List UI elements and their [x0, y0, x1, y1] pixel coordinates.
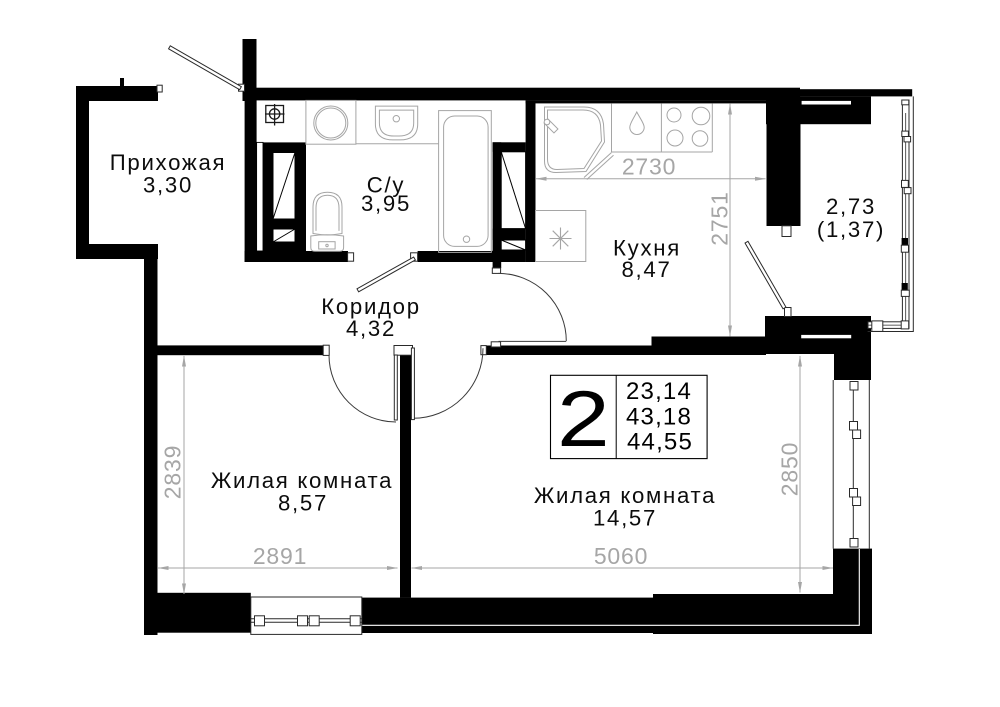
svg-text:14,57: 14,57	[593, 506, 657, 531]
svg-text:2,73: 2,73	[826, 194, 876, 219]
svg-text:44,55: 44,55	[627, 429, 693, 456]
svg-text:23,14: 23,14	[626, 378, 692, 405]
svg-text:8,47: 8,47	[622, 257, 672, 282]
svg-text:8,57: 8,57	[278, 491, 328, 516]
svg-text:Прихожая: Прихожая	[110, 150, 226, 175]
svg-text:3,30: 3,30	[143, 173, 193, 198]
svg-text:5060: 5060	[594, 543, 648, 569]
svg-text:2: 2	[557, 375, 610, 463]
svg-text:2891: 2891	[253, 543, 307, 569]
svg-text:2730: 2730	[622, 154, 676, 180]
svg-text:Жилая комната: Жилая комната	[211, 468, 393, 493]
svg-text:43,18: 43,18	[626, 404, 692, 431]
svg-text:3,95: 3,95	[361, 191, 411, 216]
svg-text:2751: 2751	[707, 191, 733, 245]
svg-text:(1,37): (1,37)	[817, 217, 885, 242]
svg-text:Жилая комната: Жилая комната	[534, 483, 716, 508]
svg-text:2839: 2839	[160, 445, 186, 499]
svg-text:4,32: 4,32	[346, 316, 396, 341]
svg-text:2850: 2850	[777, 442, 803, 496]
